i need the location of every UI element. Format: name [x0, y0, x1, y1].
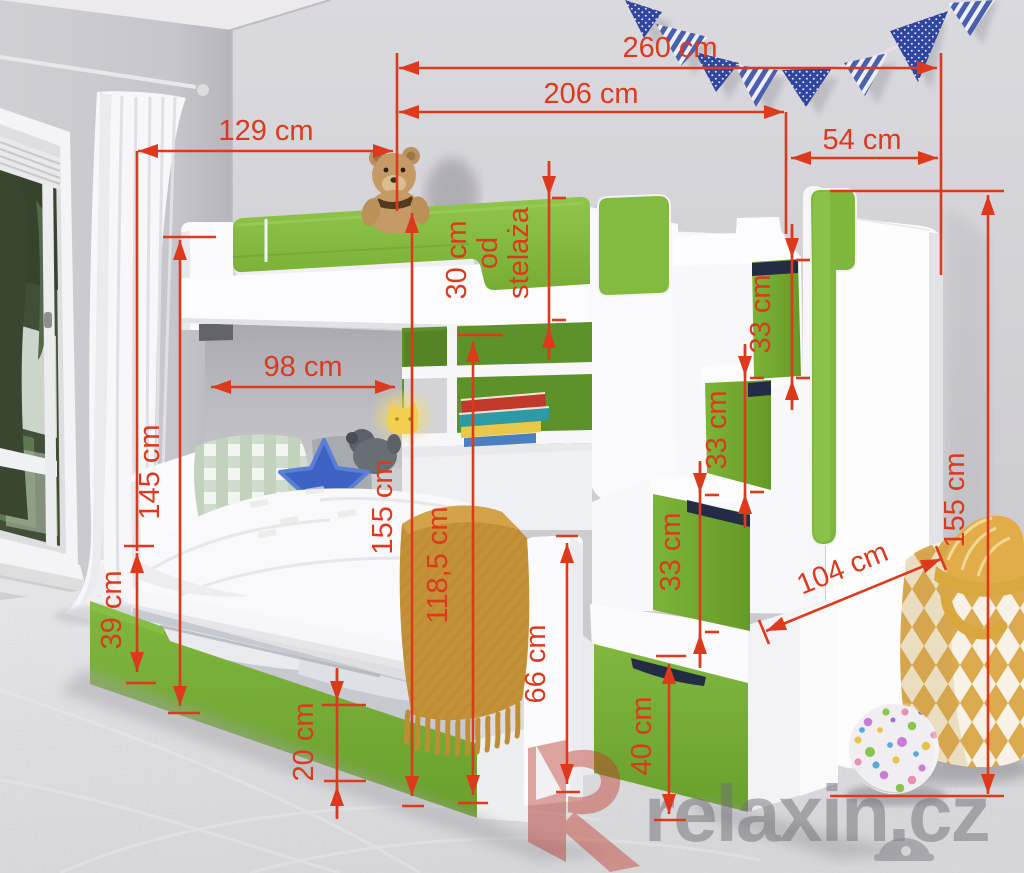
svg-text:stelaża: stelaża [503, 206, 535, 299]
svg-text:98 cm: 98 cm [264, 351, 343, 383]
svg-text:206 cm: 206 cm [543, 78, 638, 110]
svg-text:155 cm: 155 cm [367, 459, 399, 554]
svg-text:33 cm: 33 cm [701, 391, 733, 470]
svg-text:66 cm: 66 cm [520, 625, 552, 704]
svg-text:33 cm: 33 cm [745, 275, 777, 354]
svg-text:39 cm: 39 cm [96, 571, 128, 650]
svg-text:relaxin.cz: relaxin.cz [644, 769, 989, 858]
svg-text:145 cm: 145 cm [134, 424, 166, 519]
svg-text:118,5 cm: 118,5 cm [422, 506, 454, 623]
svg-text:129 cm: 129 cm [218, 115, 313, 147]
svg-text:20 cm: 20 cm [288, 703, 320, 782]
svg-text:od: od [472, 237, 504, 269]
svg-text:33 cm: 33 cm [655, 513, 687, 592]
svg-text:155 cm: 155 cm [939, 452, 971, 547]
svg-text:54 cm: 54 cm [823, 124, 902, 156]
svg-text:260 cm: 260 cm [622, 32, 717, 64]
svg-text:40 cm: 40 cm [626, 697, 658, 776]
svg-text:30 cm: 30 cm [441, 221, 473, 300]
